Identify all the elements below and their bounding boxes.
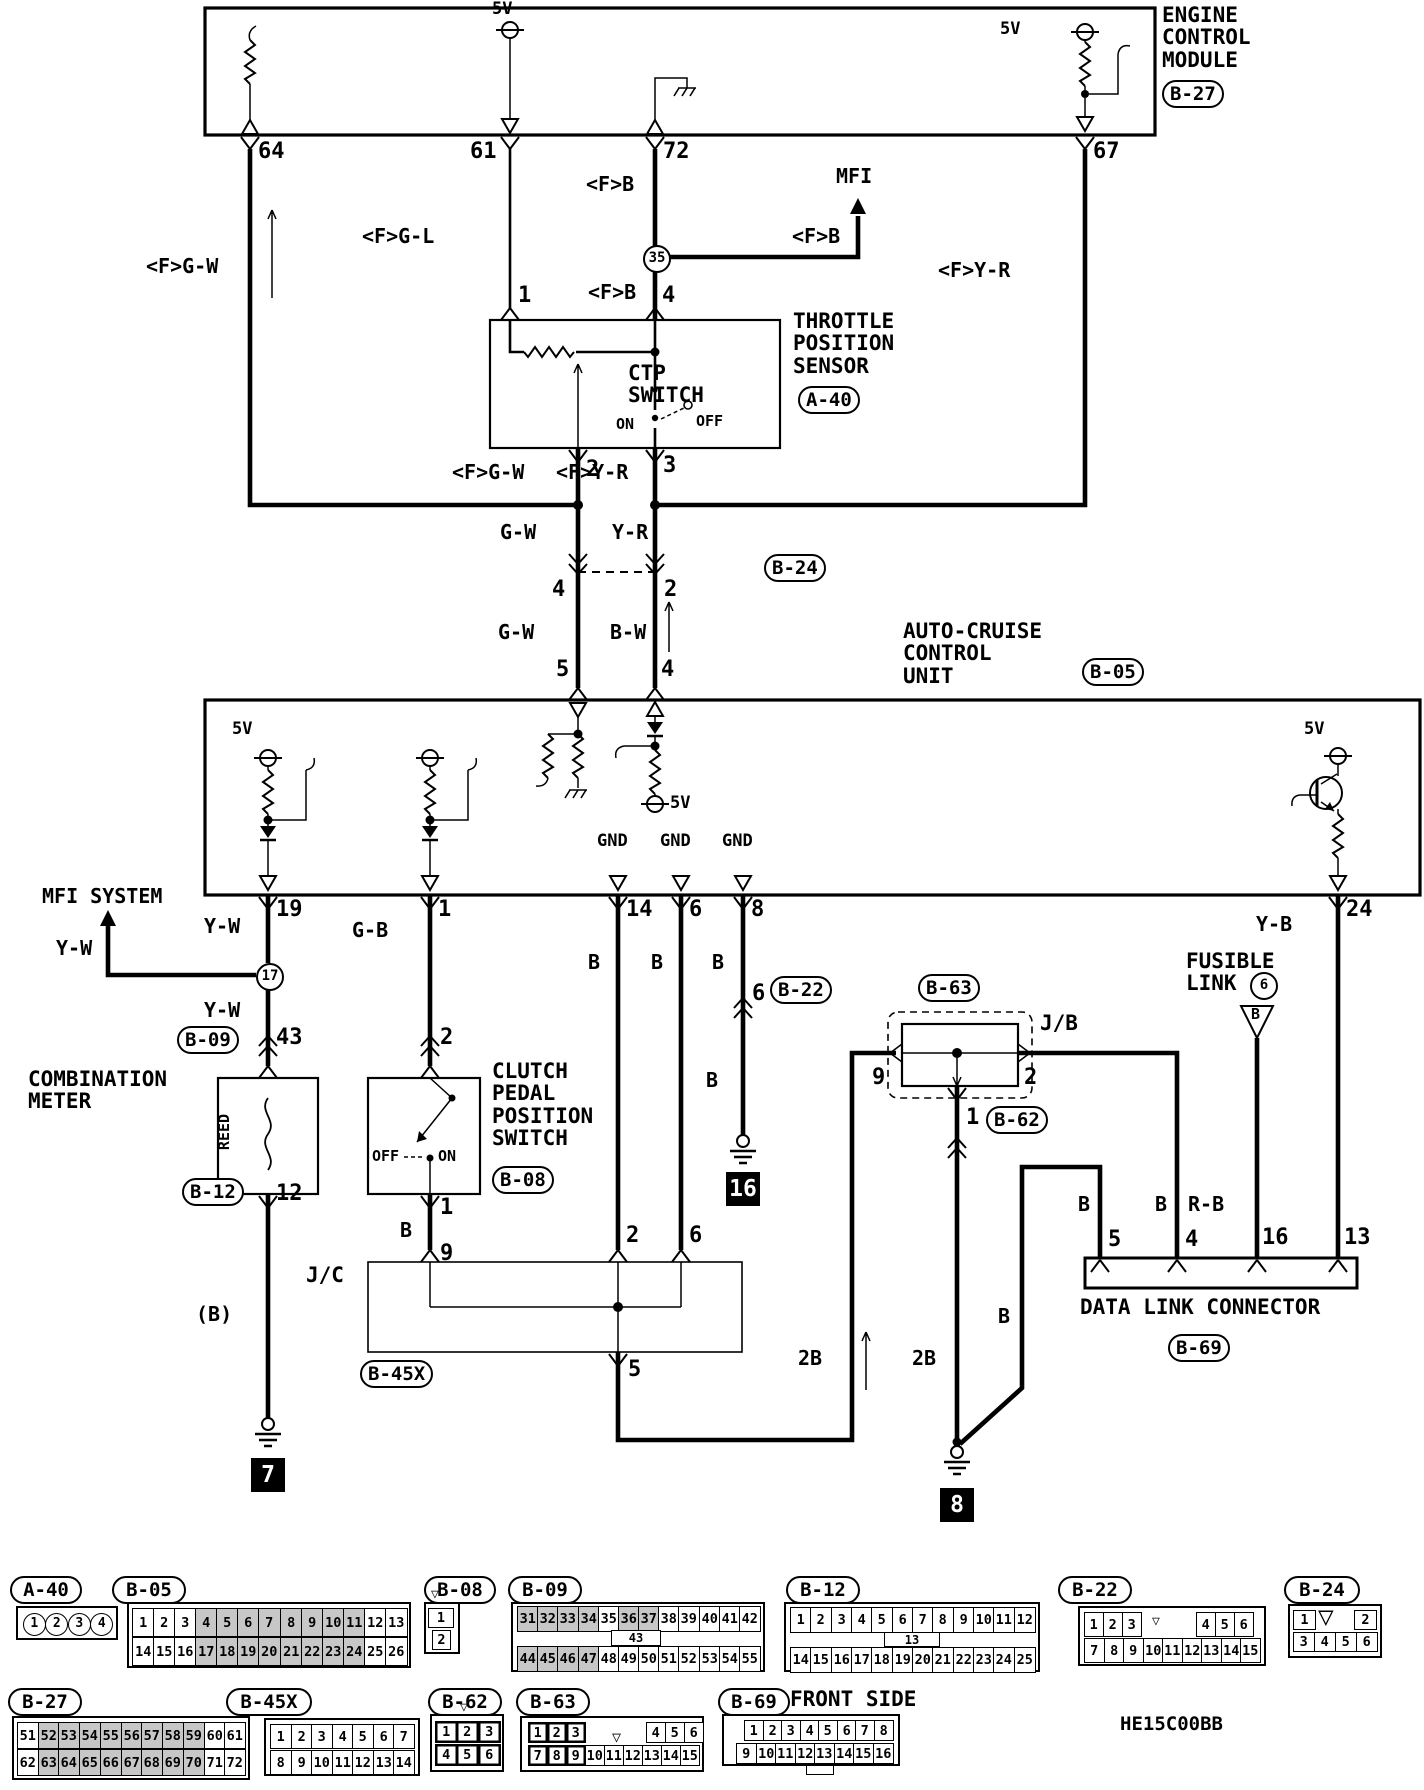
b69-code: B-69	[1168, 1334, 1230, 1362]
pin-cell-6: 6	[1356, 1632, 1378, 1652]
connector-code-b09: B-09	[508, 1576, 582, 1604]
pin-cell-23: 23	[973, 1647, 995, 1673]
pin-cell-3: 3	[311, 1724, 333, 1749]
wire-yw-3: Y-W	[204, 1000, 240, 1021]
acc-5v-a: 5V	[232, 720, 252, 738]
ground-16: 16	[726, 1172, 760, 1206]
pin-cell-12: 12	[795, 1743, 816, 1764]
pin-67: 67	[1093, 140, 1120, 164]
pin-cell-15: 15	[680, 1745, 700, 1766]
pin-cell-1: 1	[270, 1724, 292, 1749]
pin-cell-44: 44	[517, 1646, 539, 1672]
pin-cell-1: 1	[132, 1608, 155, 1637]
pin-cell-56: 56	[121, 1722, 143, 1749]
pin-cell-43: 43	[611, 1630, 661, 1646]
jc-pin5: 5	[628, 1358, 641, 1382]
pin-cell-34: 34	[578, 1606, 600, 1632]
pin-cell-13: 13	[814, 1743, 835, 1764]
pin-cell-14: 14	[1221, 1638, 1242, 1663]
pin-cell-26: 26	[385, 1637, 408, 1666]
b09-code: B-09	[177, 1026, 239, 1054]
b24-code: B-24	[764, 554, 826, 582]
wire-2b-2: 2B	[912, 1348, 936, 1369]
jb-pin1: 1	[966, 1106, 979, 1130]
pin-cell-69: 69	[162, 1749, 184, 1776]
wire-b-dlc5: B	[1078, 1194, 1090, 1215]
pin-cell-67: 67	[121, 1749, 143, 1776]
pin-cell-49: 49	[618, 1646, 640, 1672]
clutch-title: CLUTCH PEDAL POSITION SWITCH	[492, 1060, 593, 1150]
diagram-code: HE15C00BB	[1120, 1714, 1223, 1734]
pin-cell-15: 15	[153, 1637, 176, 1666]
dlc-title: DATA LINK CONNECTOR	[1080, 1296, 1320, 1318]
b62-code: B-62	[986, 1106, 1048, 1134]
pin-cell-46: 46	[557, 1646, 579, 1672]
pin-cell-7: 7	[912, 1607, 934, 1633]
pin-cell-19: 19	[892, 1647, 914, 1673]
b69-tab	[806, 1765, 834, 1775]
pin-cell-13: 13	[385, 1608, 408, 1637]
pin-cell-10: 10	[311, 1750, 333, 1775]
triangle-marker: ▽	[460, 1701, 468, 1714]
b45x-code: B-45X	[360, 1360, 433, 1388]
connector-code-b05: B-05	[112, 1576, 186, 1604]
pin-cell-15: 15	[853, 1743, 874, 1764]
ecm-title: ENGINE CONTROL MODULE	[1162, 4, 1251, 71]
pin-cell-5: 5	[1215, 1612, 1235, 1637]
pin-cell-17: 17	[195, 1637, 218, 1666]
pin-cell-3: 3	[566, 1722, 586, 1743]
pin-cell-7: 7	[855, 1720, 875, 1741]
pin-cell-65: 65	[79, 1749, 101, 1776]
pin-cell-12: 12	[1182, 1638, 1203, 1663]
pin-cell-42: 42	[739, 1606, 761, 1632]
wire-fb-1: <F>B	[586, 174, 634, 195]
pin-cell-25: 25	[1014, 1647, 1036, 1673]
triangle-marker: ▽	[431, 1588, 439, 1601]
reed-label: REED	[216, 1114, 232, 1150]
pin-cell-1: 1	[435, 1721, 458, 1743]
pin-cell-36: 36	[618, 1606, 640, 1632]
ecm-code: B-27	[1162, 80, 1224, 108]
clutch-on: ON	[438, 1148, 456, 1164]
pin-cell-6: 6	[892, 1607, 914, 1633]
connector-code-a40: A-40	[10, 1576, 82, 1604]
pin-cell-38: 38	[658, 1606, 680, 1632]
fusible-link-6: 6	[1250, 972, 1278, 1000]
ctp-off: OFF	[696, 413, 723, 429]
pin-cell-10: 10	[973, 1607, 995, 1633]
pin-cell-7: 7	[1084, 1638, 1105, 1663]
pin-cell-45: 45	[537, 1646, 559, 1672]
pin-cell-12: 12	[623, 1745, 643, 1766]
pin-cell-13: 13	[884, 1632, 940, 1647]
wire-b-6: B	[651, 952, 663, 973]
b24-pin2: 2	[664, 578, 677, 602]
pin-cell-11: 11	[775, 1743, 796, 1764]
pin-cell-11: 11	[343, 1608, 366, 1637]
wire-b-8b: B	[706, 1070, 718, 1091]
pin-cell-8: 8	[874, 1720, 894, 1741]
junction-dots	[264, 90, 1090, 1447]
pin-cell-8: 8	[547, 1745, 567, 1766]
pin-cell-15: 15	[1240, 1638, 1261, 1663]
pin-cell-8: 8	[1104, 1638, 1125, 1663]
pin-cell-39: 39	[678, 1606, 700, 1632]
pin-cell-9: 9	[953, 1607, 975, 1633]
wire-b-paren: (B)	[196, 1304, 232, 1325]
jb-pin9: 9	[872, 1066, 885, 1090]
pin-cell-5: 5	[352, 1724, 374, 1749]
clutch-pin9: 9	[440, 1242, 453, 1266]
pin-cell-55: 55	[739, 1646, 761, 1672]
pin-cell-54: 54	[719, 1646, 741, 1672]
pin-cell-1: 1	[428, 1608, 454, 1628]
pin-cell-2: 2	[456, 1721, 479, 1743]
acc-5v-b: 5V	[670, 794, 690, 812]
acc-pin19: 19	[276, 898, 303, 922]
pin-cell-2: 2	[1354, 1610, 1377, 1630]
pin-cell-50: 50	[638, 1646, 660, 1672]
pin-cell-3: 3	[781, 1720, 801, 1741]
b12-code: B-12	[182, 1178, 244, 1206]
acc-5v-c: 5V	[1304, 720, 1324, 738]
jb-pin2: 2	[1024, 1066, 1037, 1090]
pin-cell-21: 21	[280, 1637, 303, 1666]
tps-title: THROTTLE POSITION SENSOR	[793, 310, 894, 377]
mfi-system-label: MFI SYSTEM	[42, 886, 162, 907]
wire-b-clutch: B	[400, 1220, 412, 1241]
pin-cell-13: 13	[1201, 1638, 1222, 1663]
wire-yw-2: Y-W	[204, 916, 240, 937]
ecm-5v-67: 5V	[1000, 20, 1020, 38]
pin-cell-51: 51	[17, 1722, 39, 1749]
pin-cell-10: 10	[322, 1608, 345, 1637]
connector-code-b45x: B-45X	[226, 1688, 312, 1716]
pin-cell-3: 3	[831, 1607, 853, 1633]
acc-pin8: 8	[751, 898, 764, 922]
fusible-link-b: B	[1251, 1006, 1260, 1022]
pin-cell-10: 10	[1143, 1638, 1164, 1663]
pin-cell-14: 14	[661, 1745, 681, 1766]
pin-cell-11: 11	[1162, 1638, 1183, 1663]
ground-7: 7	[251, 1458, 285, 1492]
pin-cell-53: 53	[58, 1722, 80, 1749]
pin-cell-10: 10	[585, 1745, 605, 1766]
pin-cell-17: 17	[851, 1647, 873, 1673]
pin-cell-14: 14	[132, 1637, 155, 1666]
pin-cell-51: 51	[658, 1646, 680, 1672]
pin-cell-70: 70	[183, 1749, 205, 1776]
pin-cell-57: 57	[141, 1722, 163, 1749]
acc-code: B-05	[1082, 658, 1144, 686]
connector-code-b27: B-27	[8, 1688, 82, 1716]
pin-cell-48: 48	[598, 1646, 620, 1672]
joint-35: 35	[643, 245, 671, 273]
pin-cell-52: 52	[678, 1646, 700, 1672]
pin-cell-3: 3	[478, 1721, 501, 1743]
pin-cell-4: 4	[195, 1608, 218, 1637]
pin-cell-58: 58	[162, 1722, 184, 1749]
wire-fgw-2: <F>G-W	[452, 462, 524, 483]
thick-wires	[108, 149, 1338, 1444]
acc-pin14: 14	[626, 898, 653, 922]
b22-code: B-22	[770, 976, 832, 1004]
wire-fyr: <F>Y-R	[938, 260, 1010, 281]
ecm-5v-61: 5V	[492, 0, 512, 18]
dlc-pin4: 4	[1185, 1228, 1198, 1252]
gnd-2: GND	[660, 832, 691, 850]
tps-pin4: 4	[662, 284, 675, 308]
pin-cell-12: 12	[1014, 1607, 1036, 1633]
acc-pin24: 24	[1346, 898, 1373, 922]
gnd-3: GND	[722, 832, 753, 850]
dlc-pin13: 13	[1344, 1226, 1371, 1250]
pin-cell-9: 9	[566, 1745, 586, 1766]
pin-cell-5: 5	[1335, 1632, 1357, 1652]
pin-cell-18: 18	[216, 1637, 239, 1666]
pin-cell-66: 66	[100, 1749, 122, 1776]
connector-code-b24: B-24	[1284, 1576, 1360, 1604]
wire-b-dlc4: B	[1155, 1194, 1167, 1215]
pin-cell-40: 40	[699, 1606, 721, 1632]
pin-cell-2: 2	[432, 1630, 451, 1650]
ground-8: 8	[940, 1488, 974, 1522]
pin-circle-3: 3	[68, 1613, 91, 1636]
b08-code: B-08	[492, 1166, 554, 1194]
pin-cell-53: 53	[699, 1646, 721, 1672]
jc-pin2: 2	[626, 1224, 639, 1248]
wire-b-gnd: B	[998, 1306, 1010, 1327]
connector-code-b63: B-63	[516, 1688, 590, 1716]
wire-yw-1: Y-W	[56, 938, 92, 959]
wire-b-8: B	[712, 952, 724, 973]
pin-cell-3: 3	[174, 1608, 197, 1637]
pin-64: 64	[258, 140, 285, 164]
pin-cell-15: 15	[810, 1647, 832, 1673]
pin-cell-12: 12	[364, 1608, 387, 1637]
wire-yb: Y-B	[1256, 914, 1292, 935]
pin-cell-2: 2	[763, 1720, 783, 1741]
pin-cell-9: 9	[291, 1750, 313, 1775]
pin-cell-16: 16	[174, 1637, 197, 1666]
pin-cell-11: 11	[993, 1607, 1015, 1633]
jc-pin6: 6	[689, 1224, 702, 1248]
pin-cell-4: 4	[1196, 1612, 1216, 1637]
clutch-pin1: 1	[440, 1196, 453, 1220]
pin-cell-14: 14	[834, 1743, 855, 1764]
pin-cell-37: 37	[638, 1606, 660, 1632]
tps-pin1: 1	[518, 284, 531, 308]
b22-pin6: 6	[752, 982, 765, 1006]
pin-cell-54: 54	[79, 1722, 101, 1749]
ctp-on: ON	[616, 416, 634, 432]
combination-meter-title: COMBINATION METER	[28, 1068, 167, 1113]
pin-cell-62: 62	[17, 1749, 39, 1776]
acc-pin5: 5	[556, 658, 569, 682]
pin-cell-6: 6	[684, 1722, 704, 1743]
pin-cell-6: 6	[373, 1724, 395, 1749]
acc-pin6: 6	[689, 898, 702, 922]
pin-cell-68: 68	[141, 1749, 163, 1776]
b63-code: B-63	[918, 974, 980, 1002]
pin-cell-72: 72	[224, 1749, 246, 1776]
pin-cell-55: 55	[100, 1722, 122, 1749]
acc-title: AUTO-CRUISE CONTROL UNIT	[903, 620, 1042, 687]
pin-cell-71: 71	[204, 1749, 226, 1776]
pin-cell-4: 4	[1314, 1632, 1336, 1652]
pin-cell-4: 4	[332, 1724, 354, 1749]
tps-pin3: 3	[663, 454, 676, 478]
pin-cell-60: 60	[204, 1722, 226, 1749]
b24-pin4: 4	[552, 578, 565, 602]
wire-fgw: <F>G-W	[146, 256, 218, 277]
pin-cell-6: 6	[837, 1720, 857, 1741]
pin-cell-20: 20	[258, 1637, 281, 1666]
pin-cell-35: 35	[598, 1606, 620, 1632]
clutch-pin2: 2	[440, 1026, 453, 1050]
connector-code-b22: B-22	[1058, 1576, 1132, 1604]
pin-cell-22: 22	[301, 1637, 324, 1666]
pin-cell-6: 6	[1234, 1612, 1254, 1637]
pin-cell-16: 16	[873, 1743, 894, 1764]
wire-gw-1: G-W	[500, 522, 536, 543]
pin-cell-5: 5	[665, 1722, 685, 1743]
pin-cell-2: 2	[153, 1608, 176, 1637]
pin-cell-59: 59	[183, 1722, 205, 1749]
pin-cell-7: 7	[258, 1608, 281, 1637]
pin-cell-5: 5	[871, 1607, 893, 1633]
pin-cell-2: 2	[810, 1607, 832, 1633]
wire-yr-1: Y-R	[612, 522, 648, 543]
pin-cell-6: 6	[237, 1608, 260, 1637]
pin-12: 12	[276, 1182, 303, 1206]
pin-cell-13: 13	[373, 1750, 395, 1775]
pin-cell-13: 13	[642, 1745, 662, 1766]
pin-cell-4: 4	[851, 1607, 873, 1633]
pin-cell-11: 11	[604, 1745, 624, 1766]
pin-cell-7: 7	[393, 1724, 415, 1749]
pin-cell-19: 19	[237, 1637, 260, 1666]
wire-rb: R-B	[1188, 1194, 1224, 1215]
pin-cell-9: 9	[736, 1743, 757, 1764]
pin-cell-63: 63	[38, 1749, 60, 1776]
pin-43: 43	[276, 1026, 303, 1050]
pin-cell-23: 23	[322, 1637, 345, 1666]
wiring-diagram-page: ENGINE CONTROL MODULE B-27 5V 5V 64 61 7…	[0, 0, 1424, 1790]
tps-code: A-40	[798, 386, 860, 414]
triangle-marker: ▽	[612, 1730, 621, 1745]
pin-cell-1: 1	[790, 1607, 812, 1633]
clutch-off: OFF	[372, 1148, 399, 1164]
pin-cell-33: 33	[557, 1606, 579, 1632]
pin-circle-2: 2	[45, 1613, 68, 1636]
wire-gw-2: G-W	[498, 622, 534, 643]
pin-cell-8: 8	[270, 1750, 292, 1775]
wire-fb-3: <F>B	[588, 282, 636, 303]
wire-fyr-2: <F>Y-R	[556, 462, 628, 483]
mfi-label: MFI	[836, 166, 872, 187]
pin-cell-52: 52	[38, 1722, 60, 1749]
jc-label: J/C	[306, 1264, 344, 1286]
pin-cell-11: 11	[332, 1750, 354, 1775]
pin-cell-24: 24	[993, 1647, 1015, 1673]
pin-cell-18: 18	[871, 1647, 893, 1673]
front-side-label: FRONT SIDE	[790, 1688, 916, 1710]
pin-cell-10: 10	[756, 1743, 777, 1764]
triangle-marker: ▽	[1152, 1615, 1160, 1628]
pin-cell-1: 1	[528, 1722, 548, 1743]
pin-cell-8: 8	[280, 1608, 303, 1637]
acc-pin4: 4	[661, 658, 674, 682]
pin-cell-32: 32	[537, 1606, 559, 1632]
pin-cell-3: 3	[1293, 1632, 1315, 1652]
pin-cell-4: 4	[800, 1720, 820, 1741]
jb-label: J/B	[1040, 1012, 1078, 1034]
pin-cell-64: 64	[58, 1749, 80, 1776]
dlc-pin5: 5	[1108, 1228, 1121, 1252]
pin-cell-22: 22	[953, 1647, 975, 1673]
pin-cell-61: 61	[224, 1722, 246, 1749]
ctp-switch-label: CTP SWITCH	[628, 362, 704, 407]
connector-code-b69: B-69	[718, 1688, 790, 1716]
pin-cell-20: 20	[912, 1647, 934, 1673]
pin-cell-9: 9	[301, 1608, 324, 1637]
pin-61: 61	[470, 140, 497, 164]
pin-cell-5: 5	[456, 1744, 479, 1766]
pin-cell-31: 31	[517, 1606, 539, 1632]
pin-cell-41: 41	[719, 1606, 741, 1632]
pin-cell-8: 8	[932, 1607, 954, 1633]
pin-cell-1: 1	[1084, 1612, 1104, 1637]
wire-b-14: B	[588, 952, 600, 973]
gnd-1: GND	[597, 832, 628, 850]
triangle-marker: ▽	[1318, 1604, 1334, 1630]
dlc-pin16: 16	[1262, 1226, 1289, 1250]
pin-cell-1: 1	[744, 1720, 764, 1741]
wire-2b-1: 2B	[798, 1348, 822, 1369]
pin-cell-4: 4	[435, 1744, 458, 1766]
pin-cell-3: 3	[1122, 1612, 1142, 1637]
connector-code-b12: B-12	[786, 1576, 860, 1604]
wire-gb: G-B	[352, 920, 388, 941]
pin-72: 72	[663, 140, 690, 164]
pin-cell-1: 1	[1293, 1610, 1316, 1630]
pin-cell-47: 47	[578, 1646, 600, 1672]
pin-cell-5: 5	[818, 1720, 838, 1741]
pin-cell-24: 24	[343, 1637, 366, 1666]
pin-cell-6: 6	[478, 1744, 501, 1766]
wire-fgl: <F>G-L	[362, 226, 434, 247]
pin-cell-25: 25	[364, 1637, 387, 1666]
pin-cell-21: 21	[932, 1647, 954, 1673]
pin-cell-7: 7	[528, 1745, 548, 1766]
pin-circle-4: 4	[90, 1613, 113, 1636]
wire-bw: B-W	[610, 622, 646, 643]
joint-17: 17	[256, 963, 284, 991]
pin-cell-12: 12	[352, 1750, 374, 1775]
pin-cell-2: 2	[547, 1722, 567, 1743]
acc-pin1: 1	[438, 898, 451, 922]
pin-cell-2: 2	[291, 1724, 313, 1749]
pin-cell-5: 5	[216, 1608, 239, 1637]
symbols	[100, 22, 1352, 1474]
pin-circle-1: 1	[23, 1613, 46, 1636]
pin-cell-9: 9	[1123, 1638, 1144, 1663]
wire-fb-2: <F>B	[792, 226, 840, 247]
pin-cell-16: 16	[831, 1647, 853, 1673]
pin-cell-14: 14	[790, 1647, 812, 1673]
